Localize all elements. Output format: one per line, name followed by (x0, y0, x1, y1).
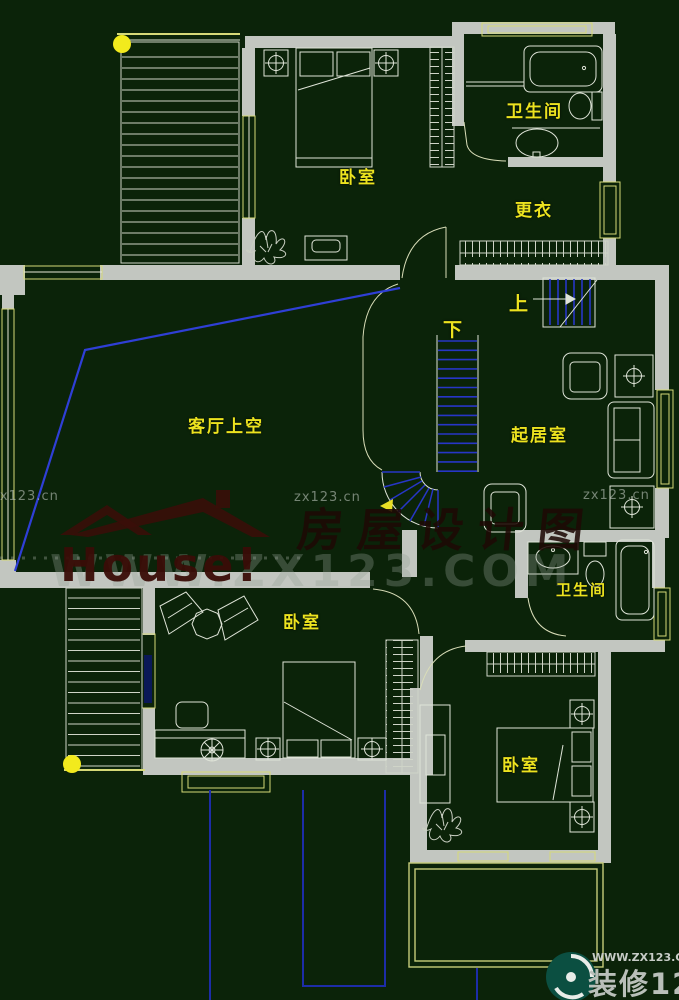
nightstand (570, 802, 594, 832)
yellow-dot-bottom (63, 755, 81, 773)
wardrobe-bedroom-mid (386, 640, 418, 773)
sink-top (512, 128, 600, 157)
window-bathroom-mid-right (654, 588, 670, 640)
label-living-void: 客厅上空 (188, 412, 264, 437)
watermark-house-logo-text: House! (60, 538, 260, 592)
bed-top (296, 48, 372, 167)
window-sitting-right (657, 390, 673, 488)
door-bedroom-top (402, 227, 446, 278)
window-bedroom-mid-left (142, 634, 155, 708)
walls (0, 22, 669, 863)
label-bedroom-top: 卧室 (339, 163, 377, 188)
nightstand (256, 738, 280, 760)
window-living-top (24, 266, 102, 279)
stairwell-curved-wall (363, 284, 398, 470)
house-logo-roofs (60, 490, 270, 537)
closet-bedroom-bottom (487, 652, 595, 676)
footer-brand: 装修123 (588, 961, 679, 1000)
nightstand (570, 700, 594, 728)
side-table (615, 355, 653, 397)
stairs-up-arrow (533, 294, 575, 304)
closet-dressing (460, 241, 608, 265)
armchair (563, 353, 607, 399)
terrace-hatch-bottom-left (63, 588, 145, 773)
label-bathroom-middle: 卫生间 (556, 579, 607, 600)
label-stairs-down: 下 (443, 315, 462, 342)
bed-mid (283, 662, 355, 758)
balcony-outline (409, 863, 603, 967)
window-dressing-right (600, 182, 620, 238)
label-bedroom-bottom: 卧室 (502, 751, 540, 776)
label-bedroom-middle: 卧室 (283, 608, 321, 633)
watermark-brand-text: 房屋设计图 (295, 494, 602, 560)
bathtub-mid (616, 540, 654, 620)
door-bathroom-mid (528, 598, 566, 636)
toilet-top (569, 92, 602, 120)
roof-lines-below (210, 790, 477, 1000)
door-bathroom-top (464, 122, 506, 161)
yellow-dot-top (113, 35, 131, 53)
label-bathroom-top: 卫生间 (506, 97, 563, 122)
round-table (192, 609, 222, 639)
fan (201, 739, 223, 761)
window-bedroom-top-left (243, 116, 255, 218)
window-living-left (2, 309, 14, 560)
sofa (608, 402, 654, 478)
nightstand (374, 50, 398, 76)
nightstand (264, 50, 288, 76)
bench (305, 236, 347, 260)
label-dressing-room: 更衣 (515, 196, 553, 221)
desk-chair (176, 702, 208, 728)
label-sitting-room: 起居室 (511, 421, 568, 446)
stairs-up (533, 278, 597, 327)
wardrobe-bedroom-top (430, 47, 454, 167)
label-stairs-up: 上 (509, 289, 528, 316)
floor-plan-canvas: zx123.cn zx123.cn zx123.cn WWW.ZX123.COM… (0, 0, 679, 1000)
watermark-site-left: zx123.cn (0, 489, 59, 504)
desk (155, 730, 245, 758)
bathtub-top (524, 46, 602, 92)
chair (218, 596, 258, 640)
closets (386, 47, 608, 773)
nightstand (358, 738, 386, 760)
terrace-hatch-top-left (113, 34, 240, 263)
plant-icon (423, 809, 462, 842)
